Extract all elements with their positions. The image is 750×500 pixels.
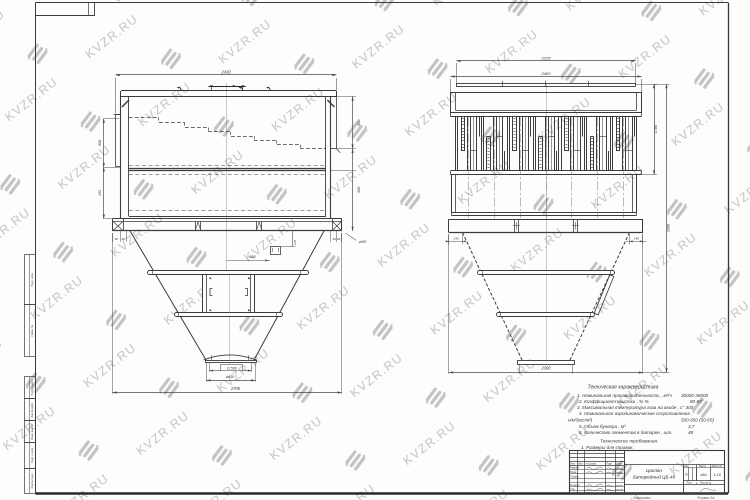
svg-text:№ докум.: № докум.: [586, 462, 597, 465]
svg-text:2300: 2300: [540, 366, 551, 371]
svg-text:Подп.: Подп.: [606, 462, 613, 465]
svg-text:⌀650: ⌀650: [359, 240, 367, 244]
svg-text:Копировал: Копировал: [634, 496, 651, 500]
svg-text:Инв.№ дубл.: Инв.№ дубл.: [30, 402, 34, 418]
svg-text:н/м²(кгс/м²): н/м²(кгс/м²): [568, 417, 593, 422]
svg-text:500-650 (50-65): 500-650 (50-65): [681, 417, 714, 422]
svg-text:600: 600: [357, 120, 361, 126]
svg-text:125: 125: [293, 240, 297, 245]
svg-text:2705: 2705: [230, 386, 241, 391]
svg-text:40: 40: [122, 237, 126, 241]
svg-text:Дата: Дата: [616, 462, 622, 465]
svg-text:140: 140: [634, 237, 639, 241]
svg-text:1. Размеры для справок.: 1. Размеры для справок.: [581, 445, 634, 450]
svg-text:Лист: Лист: [578, 462, 584, 465]
svg-text:Циклон: Циклон: [646, 468, 662, 473]
svg-text:5. Объем бункера , м³: 5. Объем бункера , м³: [579, 424, 626, 429]
svg-text:90: 90: [114, 237, 118, 241]
svg-text:550: 550: [249, 255, 256, 259]
svg-text:Разраб.: Разраб.: [570, 466, 580, 470]
svg-text:Утв.: Утв.: [570, 487, 575, 491]
svg-text:1:10: 1:10: [714, 473, 722, 477]
svg-text:Взам. инв.№: Взам. инв.№: [30, 424, 34, 440]
svg-text:D 500: D 500: [227, 367, 237, 371]
svg-text:Масштаб: Масштаб: [712, 466, 723, 468]
svg-text:80-85°: 80-85°: [690, 399, 704, 404]
svg-text:Н.контр.: Н.контр.: [570, 483, 580, 487]
svg-text:Т.контр.: Т.контр.: [570, 474, 580, 478]
svg-text:140: 140: [453, 237, 458, 241]
svg-text:Подп. и дата: Подп. и дата: [30, 380, 34, 396]
svg-text:абч: абч: [701, 473, 707, 477]
svg-text:Пров.: Пров.: [570, 470, 577, 474]
svg-text:Справ. №: Справ. №: [30, 325, 34, 337]
svg-text:Подп. и дата: Подп. и дата: [30, 447, 34, 463]
svg-text:4. Номинальное аэродинамическо: 4. Номинальное аэродинамическое сопротив…: [579, 411, 693, 416]
svg-text:Технические требования.: Технические требования.: [600, 439, 658, 445]
svg-text:90: 90: [337, 237, 341, 241]
svg-text:3. Максимальная температура га: 3. Максимальная температура газа на вход…: [577, 405, 694, 410]
svg-text:2400: 2400: [541, 71, 552, 76]
svg-text:2225: 2225: [541, 55, 552, 60]
svg-text:2430: 2430: [220, 69, 231, 74]
svg-text:⌀630: ⌀630: [226, 375, 234, 379]
svg-text:152: 152: [98, 190, 102, 196]
svg-text:40: 40: [332, 237, 336, 241]
svg-text:1780: 1780: [654, 125, 658, 133]
svg-text:600: 600: [98, 140, 102, 146]
svg-text:3,7: 3,7: [688, 424, 695, 429]
svg-text:6. Количество элементов в бата: 6. Количество элементов в батарее , шт.: [579, 430, 673, 435]
svg-text:Лит.: Лит.: [685, 466, 690, 468]
svg-text:Подл. хран.: Подл. хран.: [30, 272, 34, 286]
svg-text:Листов 1: Листов 1: [700, 482, 711, 485]
svg-text:920: 920: [357, 187, 361, 193]
svg-text:3380: 3380: [666, 224, 670, 232]
svg-text:48: 48: [688, 430, 694, 435]
svg-text:Техническая характеристика: Техническая характеристика: [588, 385, 659, 391]
svg-text:Изм: Изм: [570, 462, 575, 465]
svg-text:Масса: Масса: [699, 466, 707, 468]
svg-text:Лист: Лист: [687, 482, 693, 485]
svg-text:Инв.№ подл.: Инв.№ подл.: [30, 473, 34, 489]
svg-text:Формат А4: Формат А4: [697, 496, 714, 500]
svg-text:1. Номинальная производительно: 1. Номинальная производительность , м³/ч: [577, 393, 672, 398]
svg-text:2. Коэффициент очистки , % %: 2. Коэффициент очистки , % %: [578, 399, 649, 404]
svg-text:30000-36000: 30000-36000: [681, 393, 709, 398]
svg-text:Батарейный ЦБ-49: Батарейный ЦБ-49: [633, 474, 676, 480]
